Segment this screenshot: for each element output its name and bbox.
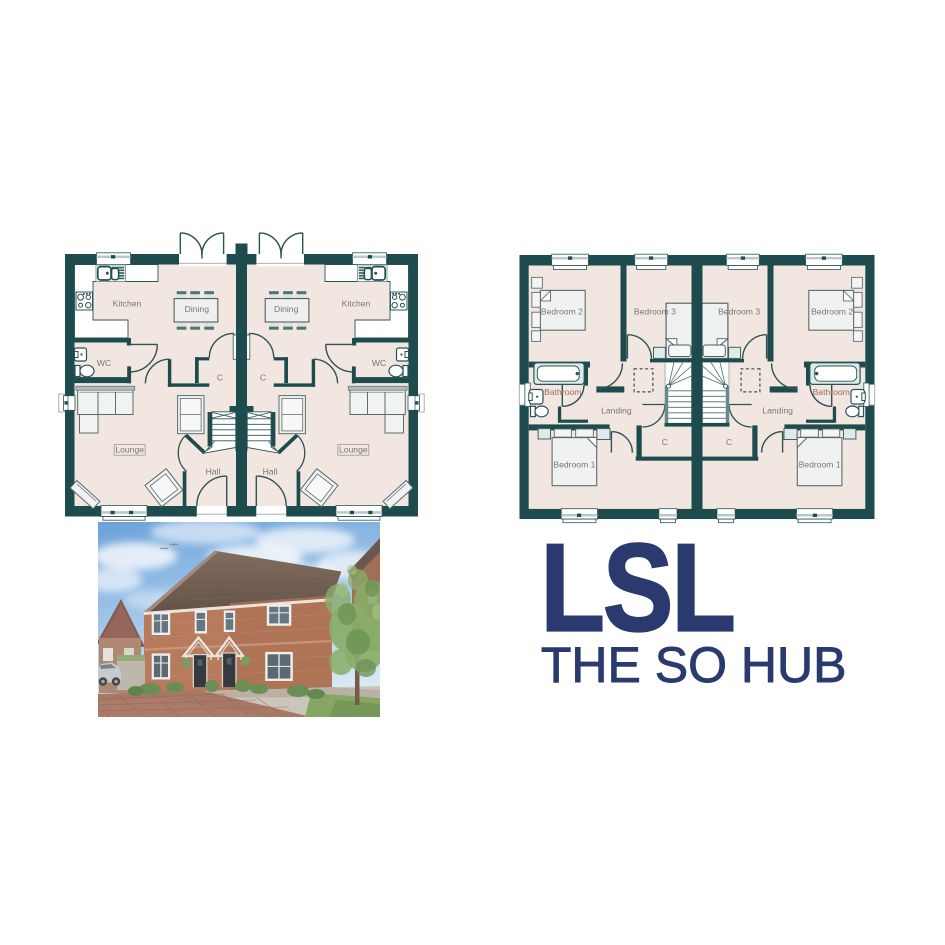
svg-text:C: C <box>260 373 266 383</box>
svg-text:C: C <box>726 437 732 447</box>
svg-text:Bedroom 2: Bedroom 2 <box>811 306 853 316</box>
svg-text:C: C <box>662 437 668 447</box>
svg-text:Dining: Dining <box>274 304 299 314</box>
svg-text:Bedroom 3: Bedroom 3 <box>718 306 760 316</box>
svg-text:Bedroom 1: Bedroom 1 <box>799 459 841 469</box>
svg-text:Kitchen: Kitchen <box>342 299 371 309</box>
svg-text:WC: WC <box>372 358 386 368</box>
svg-text:Bedroom 2: Bedroom 2 <box>541 306 583 316</box>
svg-text:Hall: Hall <box>263 467 278 477</box>
svg-text:Bedroom 1: Bedroom 1 <box>553 459 595 469</box>
svg-text:WC: WC <box>97 358 111 368</box>
svg-text:Hall: Hall <box>206 467 221 477</box>
svg-text:Dining: Dining <box>185 304 210 314</box>
svg-text:C: C <box>217 373 223 383</box>
svg-text:Lounge: Lounge <box>115 445 144 455</box>
svg-text:Bathroom: Bathroom <box>813 387 850 397</box>
svg-text:THE SO HUB: THE SO HUB <box>541 637 847 693</box>
svg-text:Bathroom: Bathroom <box>544 387 581 397</box>
svg-text:Landing: Landing <box>762 406 793 416</box>
svg-text:Bedroom 3: Bedroom 3 <box>634 306 676 316</box>
svg-text:Landing: Landing <box>601 406 632 416</box>
svg-text:Lounge: Lounge <box>339 445 368 455</box>
svg-text:Kitchen: Kitchen <box>113 299 142 309</box>
